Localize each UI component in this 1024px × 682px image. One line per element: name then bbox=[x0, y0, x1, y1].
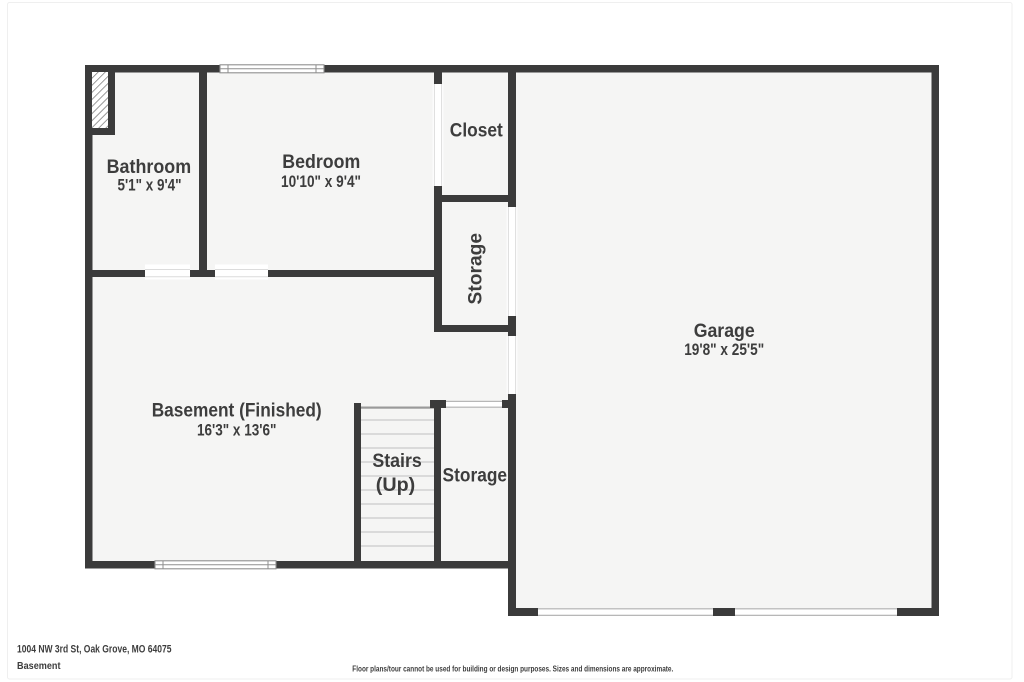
svg-text:Floor plans/tour cannot be use: Floor plans/tour cannot be used for buil… bbox=[352, 664, 673, 674]
svg-text:Bedroom: Bedroom bbox=[282, 151, 360, 173]
svg-text:Closet: Closet bbox=[450, 120, 503, 142]
svg-text:Basement: Basement bbox=[17, 660, 61, 672]
svg-text:Storage: Storage bbox=[465, 233, 487, 305]
svg-text:16'3" x 13'6": 16'3" x 13'6" bbox=[197, 422, 277, 440]
svg-text:19'8" x 25'5": 19'8" x 25'5" bbox=[684, 341, 764, 359]
svg-text:5'1" x 9'4": 5'1" x 9'4" bbox=[118, 177, 182, 195]
svg-text:Bathroom: Bathroom bbox=[107, 156, 192, 178]
svg-text:(Up): (Up) bbox=[376, 474, 416, 496]
svg-text:10'10" x 9'4": 10'10" x 9'4" bbox=[281, 173, 361, 191]
svg-text:Stairs: Stairs bbox=[372, 450, 422, 472]
svg-text:Garage: Garage bbox=[694, 320, 755, 342]
svg-text:Storage: Storage bbox=[443, 465, 508, 487]
svg-text:1004 NW 3rd St, Oak Grove, MO: 1004 NW 3rd St, Oak Grove, MO 64075 bbox=[17, 644, 172, 656]
svg-text:Basement (Finished): Basement (Finished) bbox=[152, 399, 322, 421]
